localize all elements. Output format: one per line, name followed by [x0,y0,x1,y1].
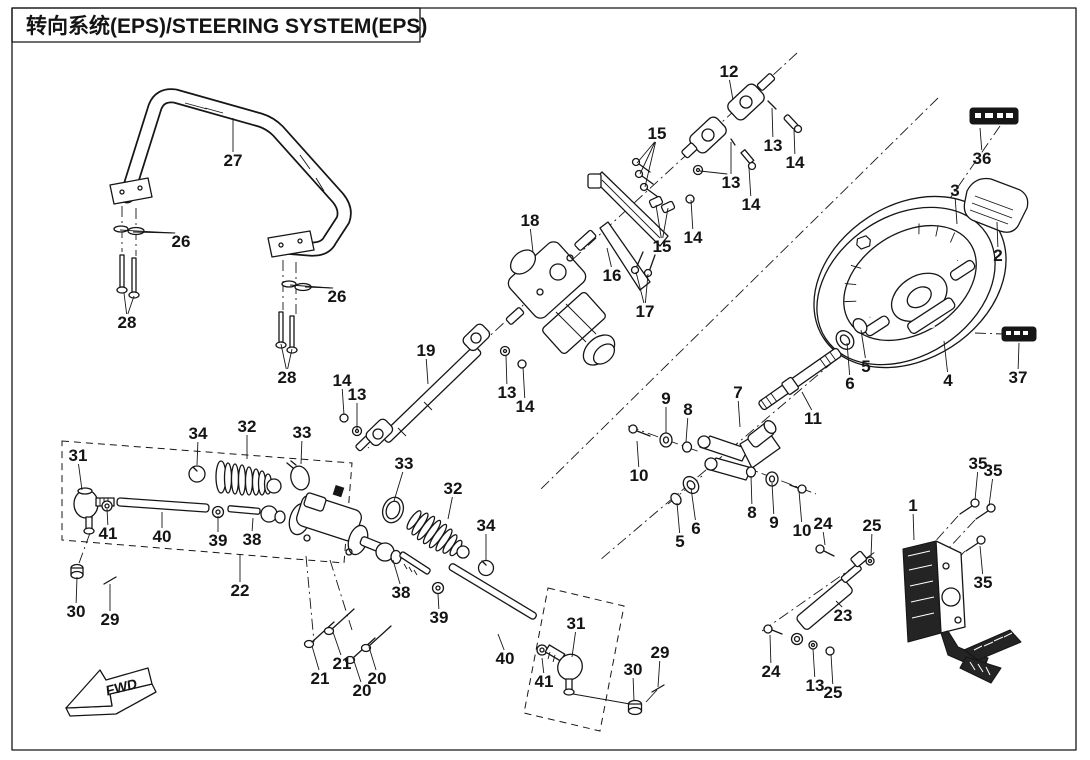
part-1-pedal-assembly [903,499,1021,683]
leader-line-34 [197,442,198,465]
part-label-28: 28 [278,368,297,387]
leader-line-35 [975,472,978,500]
leader-line-7 [738,401,740,427]
part-label-10: 10 [630,466,649,485]
leader-line-16 [607,248,611,267]
part-label-33: 33 [293,423,312,442]
leader-line-12 [729,80,733,100]
part-33-clamp-right [379,494,407,525]
leader-line-1 [913,514,914,540]
leader-line-14 [749,168,751,196]
part-label-16: 16 [603,266,622,285]
part-40-tie-rod-left [117,498,209,512]
leader-lines [76,80,1019,701]
part-12-universal-joint [681,73,801,203]
leader-line-8 [686,418,688,442]
part-30-castle-nut-right [629,701,642,715]
part-label-29: 29 [101,610,120,629]
part-22-rack-housing [286,485,395,642]
part-10-9-8-left [629,425,692,452]
part-label-9: 9 [769,513,778,532]
leader-line-21 [333,632,341,655]
leader-line-14 [691,200,693,229]
part-32-bellows-right [405,509,469,558]
part-label-24: 24 [814,514,833,533]
leader-line-35 [989,479,993,506]
part-label-35: 35 [974,573,993,592]
part-39-nut-right [433,583,444,594]
leader-line-24 [823,532,825,545]
part-label-34: 34 [189,424,208,443]
leader-line-28 [124,293,127,314]
leader-line-15 [637,142,655,163]
part-label-41: 41 [535,672,554,691]
part-label-21: 21 [333,654,352,673]
part-30-castle-nut-left [71,565,83,579]
leader-line-13 [813,649,815,677]
part-35-bolts [960,499,995,551]
part-label-13: 13 [722,173,741,192]
part-label-6: 6 [691,519,700,538]
leader-line-14 [342,389,344,415]
leader-line-39 [438,594,439,609]
part-label-20: 20 [368,669,387,688]
part-label-38: 38 [243,530,262,549]
part-label-38: 38 [392,583,411,602]
leader-line-40 [498,634,504,650]
part-18-eps-unit [501,230,621,371]
leader-line-28 [128,296,134,314]
part-27-grab-handle [110,96,344,257]
leader-line-30 [633,678,634,701]
part-7-shaft-holder [628,418,816,506]
part-label-12: 12 [720,62,739,81]
part-label-26: 26 [172,232,191,251]
part-label-1: 1 [908,496,917,515]
part-label-22: 22 [231,581,250,600]
part-16-column-bracket [588,159,675,291]
leader-line-29 [658,661,660,687]
part-label-33: 33 [395,454,414,473]
leader-line-10 [637,441,639,467]
part-label-40: 40 [496,649,515,668]
part-label-14: 14 [516,397,535,416]
part-34-ring-right [479,561,494,576]
part-label-5: 5 [675,532,684,551]
part-label-32: 32 [238,417,257,436]
part-label-11: 11 [804,409,822,428]
part-label-39: 39 [430,608,449,627]
part-label-17: 17 [636,302,655,321]
part-label-40: 40 [153,527,172,546]
part-label-2: 2 [993,246,1002,265]
part-label-35: 35 [984,461,1003,480]
part-label-9: 9 [661,389,670,408]
part-label-31: 31 [567,614,586,633]
leader-line-25 [831,654,833,684]
leader-line-8 [751,476,752,504]
part-label-3: 3 [950,181,959,200]
leader-line-33 [394,472,403,501]
part-label-14: 14 [684,228,703,247]
part-label-7: 7 [733,383,742,402]
part-label-37: 37 [1009,368,1028,387]
leader-line-13 [506,356,507,384]
leader-line-24 [770,635,771,663]
leader-line-20 [369,647,376,670]
part-label-4: 4 [943,371,953,390]
part-34-ring-left [189,466,205,482]
part-38-inner-rod-right [376,543,431,575]
part-29-cotter-pin-left [104,577,116,584]
leader-line-41 [542,658,544,673]
part-label-30: 30 [624,660,643,679]
diagram-canvas: 转向系统(EPS)/STEERING SYSTEM(EPS) [0,0,1090,760]
part-label-5: 5 [861,357,870,376]
part-label-6: 6 [845,374,854,393]
part-label-39: 39 [209,531,228,550]
leader-line-14 [523,367,525,398]
part-33-clamp-left [287,461,312,492]
part-label-21: 21 [311,669,330,688]
part-label-36: 36 [973,149,992,168]
leader-line-5 [677,503,680,533]
part-23-damper [762,545,875,655]
page-title: 转向系统(EPS)/STEERING SYSTEM(EPS) [26,14,427,38]
part-label-25: 25 [863,516,882,535]
part-label-34: 34 [477,516,496,535]
leader-line-21 [312,646,319,670]
part-11-steering-shaft [758,347,842,410]
part-label-27: 27 [224,151,243,170]
leader-line-14 [794,130,795,154]
leader-line-37 [1018,343,1019,369]
sticker-37 [1002,327,1036,341]
part-label-19: 19 [417,341,436,360]
part-label-13: 13 [348,385,367,404]
part-label-32: 32 [444,479,463,498]
leader-line-36 [980,128,982,150]
leader-line-18 [530,229,533,252]
part-label-15: 15 [648,124,667,143]
part-label-15: 15 [653,237,672,256]
part-5-6-lower-washers [668,474,702,507]
part-label-14: 14 [742,195,761,214]
parts-diagram-page: 转向系统(EPS)/STEERING SYSTEM(EPS) [0,0,1090,760]
part-label-25: 25 [824,683,843,702]
part-32-bellows-left [216,461,281,495]
part-label-13: 13 [806,676,825,695]
part-label-26: 26 [328,287,347,306]
leader-line-10 [799,491,802,522]
fwd-arrow: FWD [66,668,156,716]
part-label-31: 31 [69,446,88,465]
leader-line-31 [572,632,576,657]
left-tie-rod-parts [71,461,312,584]
leader-line-15 [645,142,656,187]
leader-line-11 [802,392,812,410]
part-label-28: 28 [118,313,137,332]
part-label-29: 29 [651,643,670,662]
part-labels: 2726282628121513141314141615171819141313… [67,62,1028,702]
part-label-8: 8 [747,503,756,522]
part-label-14: 14 [786,153,805,172]
leader-line-32 [448,497,452,519]
leader-line-9 [772,483,774,514]
leader-line-33 [301,441,302,464]
leader-line-20 [353,658,361,682]
part-label-10: 10 [793,521,812,540]
part-label-8: 8 [683,400,692,419]
part-label-23: 23 [834,606,853,625]
part-39-nut-left [213,507,224,518]
part-label-18: 18 [521,211,540,230]
part-label-13: 13 [764,136,783,155]
part-41-nut-right [537,645,547,655]
leader-line-31 [78,464,82,490]
leader-line-13 [772,108,773,137]
part-label-30: 30 [67,602,86,621]
leader-line-15 [640,142,655,174]
leader-line-25 [871,534,872,557]
part-8-9-10-right [747,467,807,493]
part-label-13: 13 [498,383,517,402]
part-38-inner-rod-left [228,506,285,523]
leader-line-30 [76,577,77,603]
part-label-41: 41 [99,524,118,543]
leader-line-19 [426,359,428,384]
sticker-36 [970,108,1018,124]
leader-line-35 [980,546,983,574]
part-label-24: 24 [762,662,781,681]
part-26-28-handle-fasteners [114,206,311,353]
part-15-bolts [633,159,676,214]
